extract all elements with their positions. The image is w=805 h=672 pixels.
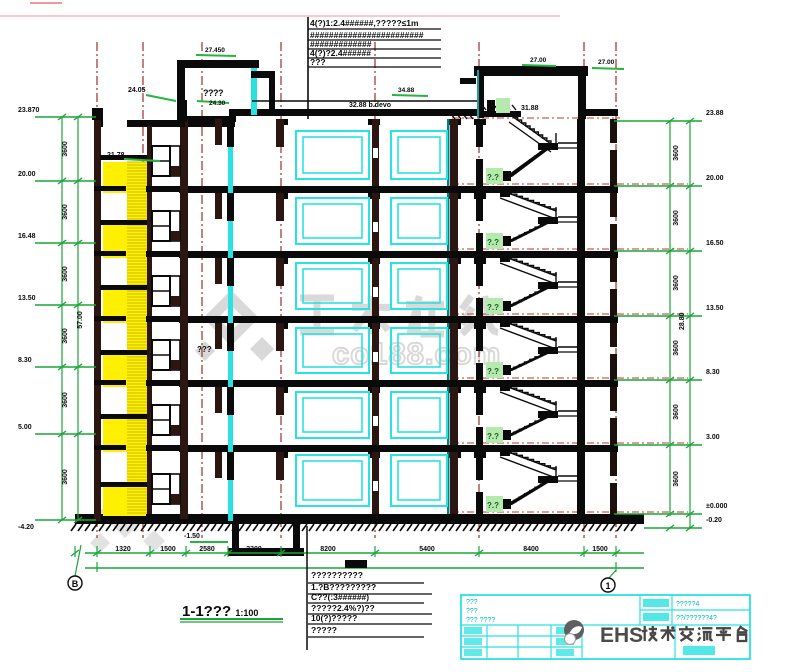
svg-text:28.80: 28.80 [679, 312, 686, 330]
svg-text:20.00: 20.00 [18, 171, 36, 178]
svg-text:8400: 8400 [523, 546, 539, 553]
svg-text:?.?: ?.? [487, 173, 499, 182]
svg-text:3600: 3600 [673, 275, 680, 291]
svg-text:3600: 3600 [673, 340, 680, 356]
svg-text:13.50: 13.50 [706, 305, 724, 312]
svg-text:31.88: 31.88 [521, 105, 539, 112]
svg-text:3300: 3300 [246, 546, 262, 553]
svg-text:-4.20: -4.20 [18, 524, 34, 531]
svg-text:5400: 5400 [419, 546, 435, 553]
svg-text:13.50: 13.50 [18, 295, 36, 302]
svg-text:20.00: 20.00 [706, 175, 724, 182]
svg-text:??? ????: ??? ???? [466, 617, 495, 624]
svg-text:27.00: 27.00 [598, 59, 615, 66]
svg-text:3600: 3600 [62, 204, 69, 220]
svg-text:2580: 2580 [199, 546, 215, 553]
svg-text:?.?: ?.? [487, 367, 499, 376]
svg-text:?????: ????? [311, 625, 337, 635]
svg-text:1320: 1320 [115, 546, 131, 553]
svg-text:??/??????4?: ??/??????4? [676, 615, 717, 622]
svg-text:1: 1 [605, 581, 610, 591]
svg-text:5.00: 5.00 [18, 424, 32, 431]
svg-text:34.88: 34.88 [398, 87, 415, 94]
svg-text:16.48: 16.48 [18, 233, 36, 240]
svg-text:3600: 3600 [62, 328, 69, 344]
svg-text:3600: 3600 [673, 145, 680, 161]
svg-text:???: ??? [466, 599, 478, 606]
svg-text:24.30: 24.30 [209, 100, 226, 107]
svg-text:??????????: ?????????? [311, 570, 363, 580]
svg-text:4(?)1:2.4######,?????≤1m: 4(?)1:2.4######,?????≤1m [310, 18, 419, 28]
svg-text:-0.20: -0.20 [706, 517, 722, 524]
svg-text:????: ???? [203, 88, 223, 98]
svg-text:3600: 3600 [62, 469, 69, 485]
svg-text:?.?: ?.? [487, 501, 499, 510]
svg-text:32.88 b.devo: 32.88 b.devo [349, 102, 391, 109]
svg-text:16.50: 16.50 [706, 240, 724, 247]
svg-text:???: ??? [466, 608, 478, 615]
svg-text:B: B [72, 579, 79, 589]
svg-text:21.78: 21.78 [107, 152, 125, 159]
svg-text:?.?: ?.? [487, 303, 499, 312]
svg-text:1500: 1500 [592, 546, 608, 553]
svg-text:57.00: 57.00 [77, 311, 84, 329]
svg-text:23.88: 23.88 [706, 110, 724, 117]
svg-text:?????4: ?????4 [676, 601, 699, 608]
svg-text:1500: 1500 [160, 546, 176, 553]
svg-text:?????2.4%?)??: ?????2.4%?)?? [311, 603, 375, 613]
svg-text:24.05: 24.05 [128, 87, 146, 94]
svg-text:?.?: ?.? [487, 238, 499, 247]
svg-text:27.00: 27.00 [530, 57, 547, 64]
svg-text:3600: 3600 [673, 404, 680, 420]
svg-text:EHS: EHS [600, 624, 643, 647]
svg-text:8.30: 8.30 [18, 357, 32, 364]
svg-text:8200: 8200 [320, 546, 336, 553]
svg-text:3600: 3600 [62, 141, 69, 157]
svg-text:-1.50: -1.50 [184, 533, 200, 540]
svg-text:3600: 3600 [62, 266, 69, 282]
svg-text:?.?: ?.? [487, 432, 499, 441]
svg-text:3.00: 3.00 [706, 434, 720, 441]
svg-text:27.450: 27.450 [205, 47, 225, 54]
svg-text:±0.000: ±0.000 [706, 503, 727, 510]
svg-text:3600: 3600 [62, 392, 69, 408]
svg-text:3600: 3600 [673, 210, 680, 226]
svg-text:8.30: 8.30 [706, 369, 720, 376]
svg-text:???: ??? [197, 345, 212, 354]
svg-text:co188.com: co188.com [332, 336, 501, 371]
svg-text:23.870: 23.870 [18, 107, 40, 114]
svg-text:3600: 3600 [673, 471, 680, 487]
